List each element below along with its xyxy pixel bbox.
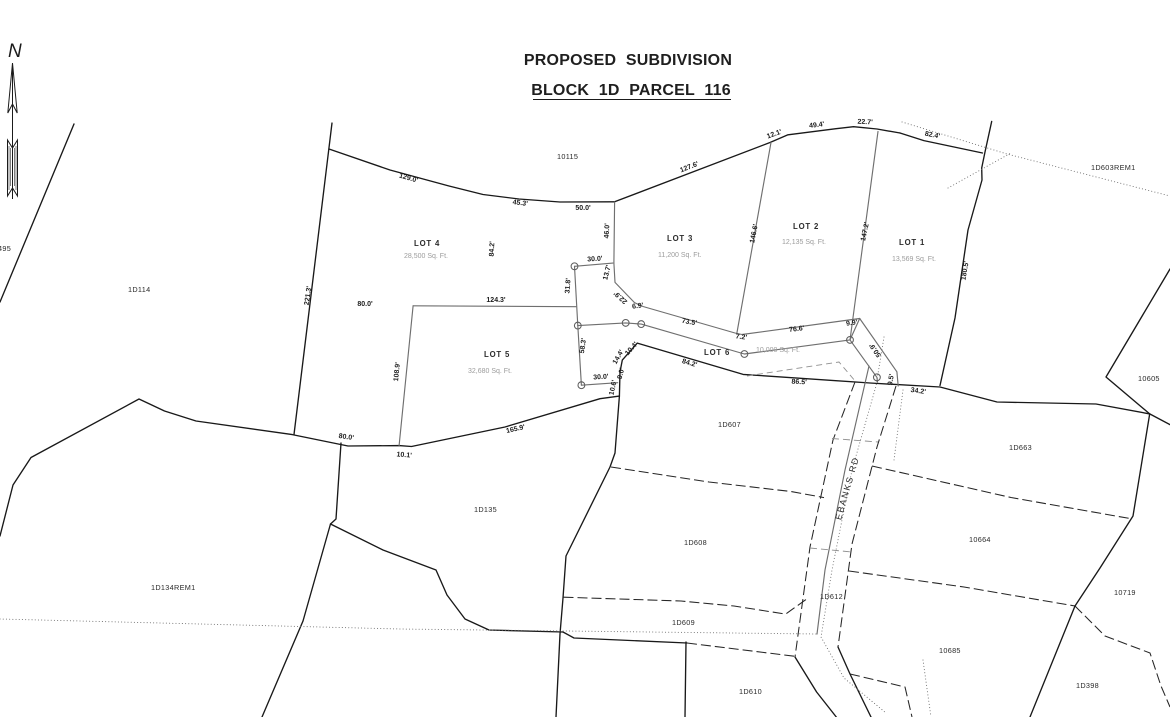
svg-text:28,500 Sq. Ft.: 28,500 Sq. Ft. <box>404 253 448 260</box>
svg-text:1D607: 1D607 <box>718 420 741 429</box>
svg-text:BLOCK 1D PARCEL 116: BLOCK 1D PARCEL 116 <box>531 82 731 99</box>
svg-text:1D114: 1D114 <box>128 285 150 294</box>
svg-text:124.3': 124.3' <box>486 297 506 304</box>
svg-text:10.1': 10.1' <box>396 451 412 459</box>
svg-text:1D398: 1D398 <box>1076 681 1099 690</box>
svg-text:LOT 1: LOT 1 <box>899 238 925 247</box>
svg-text:30.0': 30.0' <box>587 255 603 263</box>
svg-text:LOT 3: LOT 3 <box>667 234 693 243</box>
svg-text:LOT 4: LOT 4 <box>414 239 440 248</box>
svg-text:84.2': 84.2' <box>489 241 497 257</box>
svg-text:1D608: 1D608 <box>684 538 707 547</box>
svg-text:31.8': 31.8' <box>564 278 572 294</box>
svg-text:1D610: 1D610 <box>739 687 762 696</box>
svg-text:PROPOSED SUBDIVISION: PROPOSED SUBDIVISION <box>524 52 732 69</box>
svg-text:12,135 Sq. Ft.: 12,135 Sq. Ft. <box>782 239 826 246</box>
svg-text:13,569 Sq. Ft.: 13,569 Sq. Ft. <box>892 256 936 263</box>
svg-text:LOT 6: LOT 6 <box>704 348 730 357</box>
svg-text:LOT 2: LOT 2 <box>793 222 819 231</box>
svg-text:22.7': 22.7' <box>857 119 873 127</box>
svg-text:80.0': 80.0' <box>357 301 373 308</box>
svg-text:30.0': 30.0' <box>593 373 609 381</box>
svg-text:10115: 10115 <box>557 152 578 161</box>
svg-text:10,000 Sq. Ft.: 10,000 Sq. Ft. <box>756 347 800 354</box>
svg-text:50.0': 50.0' <box>575 205 591 212</box>
svg-text:495: 495 <box>0 244 11 253</box>
svg-text:1D134REM1: 1D134REM1 <box>151 583 195 592</box>
svg-text:11,200 Sq. Ft.: 11,200 Sq. Ft. <box>658 252 702 259</box>
svg-text:1D603REM1: 1D603REM1 <box>1091 163 1135 172</box>
svg-text:46.0': 46.0' <box>604 223 612 239</box>
svg-text:LOT 5: LOT 5 <box>484 350 510 359</box>
svg-text:1D663: 1D663 <box>1009 443 1032 452</box>
svg-text:10664: 10664 <box>969 535 991 544</box>
svg-text:10719: 10719 <box>1114 588 1136 597</box>
svg-text:1D612: 1D612 <box>820 592 843 601</box>
svg-text:86.5': 86.5' <box>791 379 807 387</box>
svg-text:10605: 10605 <box>1138 374 1160 383</box>
svg-text:10685: 10685 <box>939 646 961 655</box>
svg-text:N: N <box>8 41 22 62</box>
svg-text:1D135: 1D135 <box>474 505 497 514</box>
svg-text:32,680 Sq. Ft.: 32,680 Sq. Ft. <box>468 368 512 375</box>
svg-text:1D609: 1D609 <box>672 618 695 627</box>
